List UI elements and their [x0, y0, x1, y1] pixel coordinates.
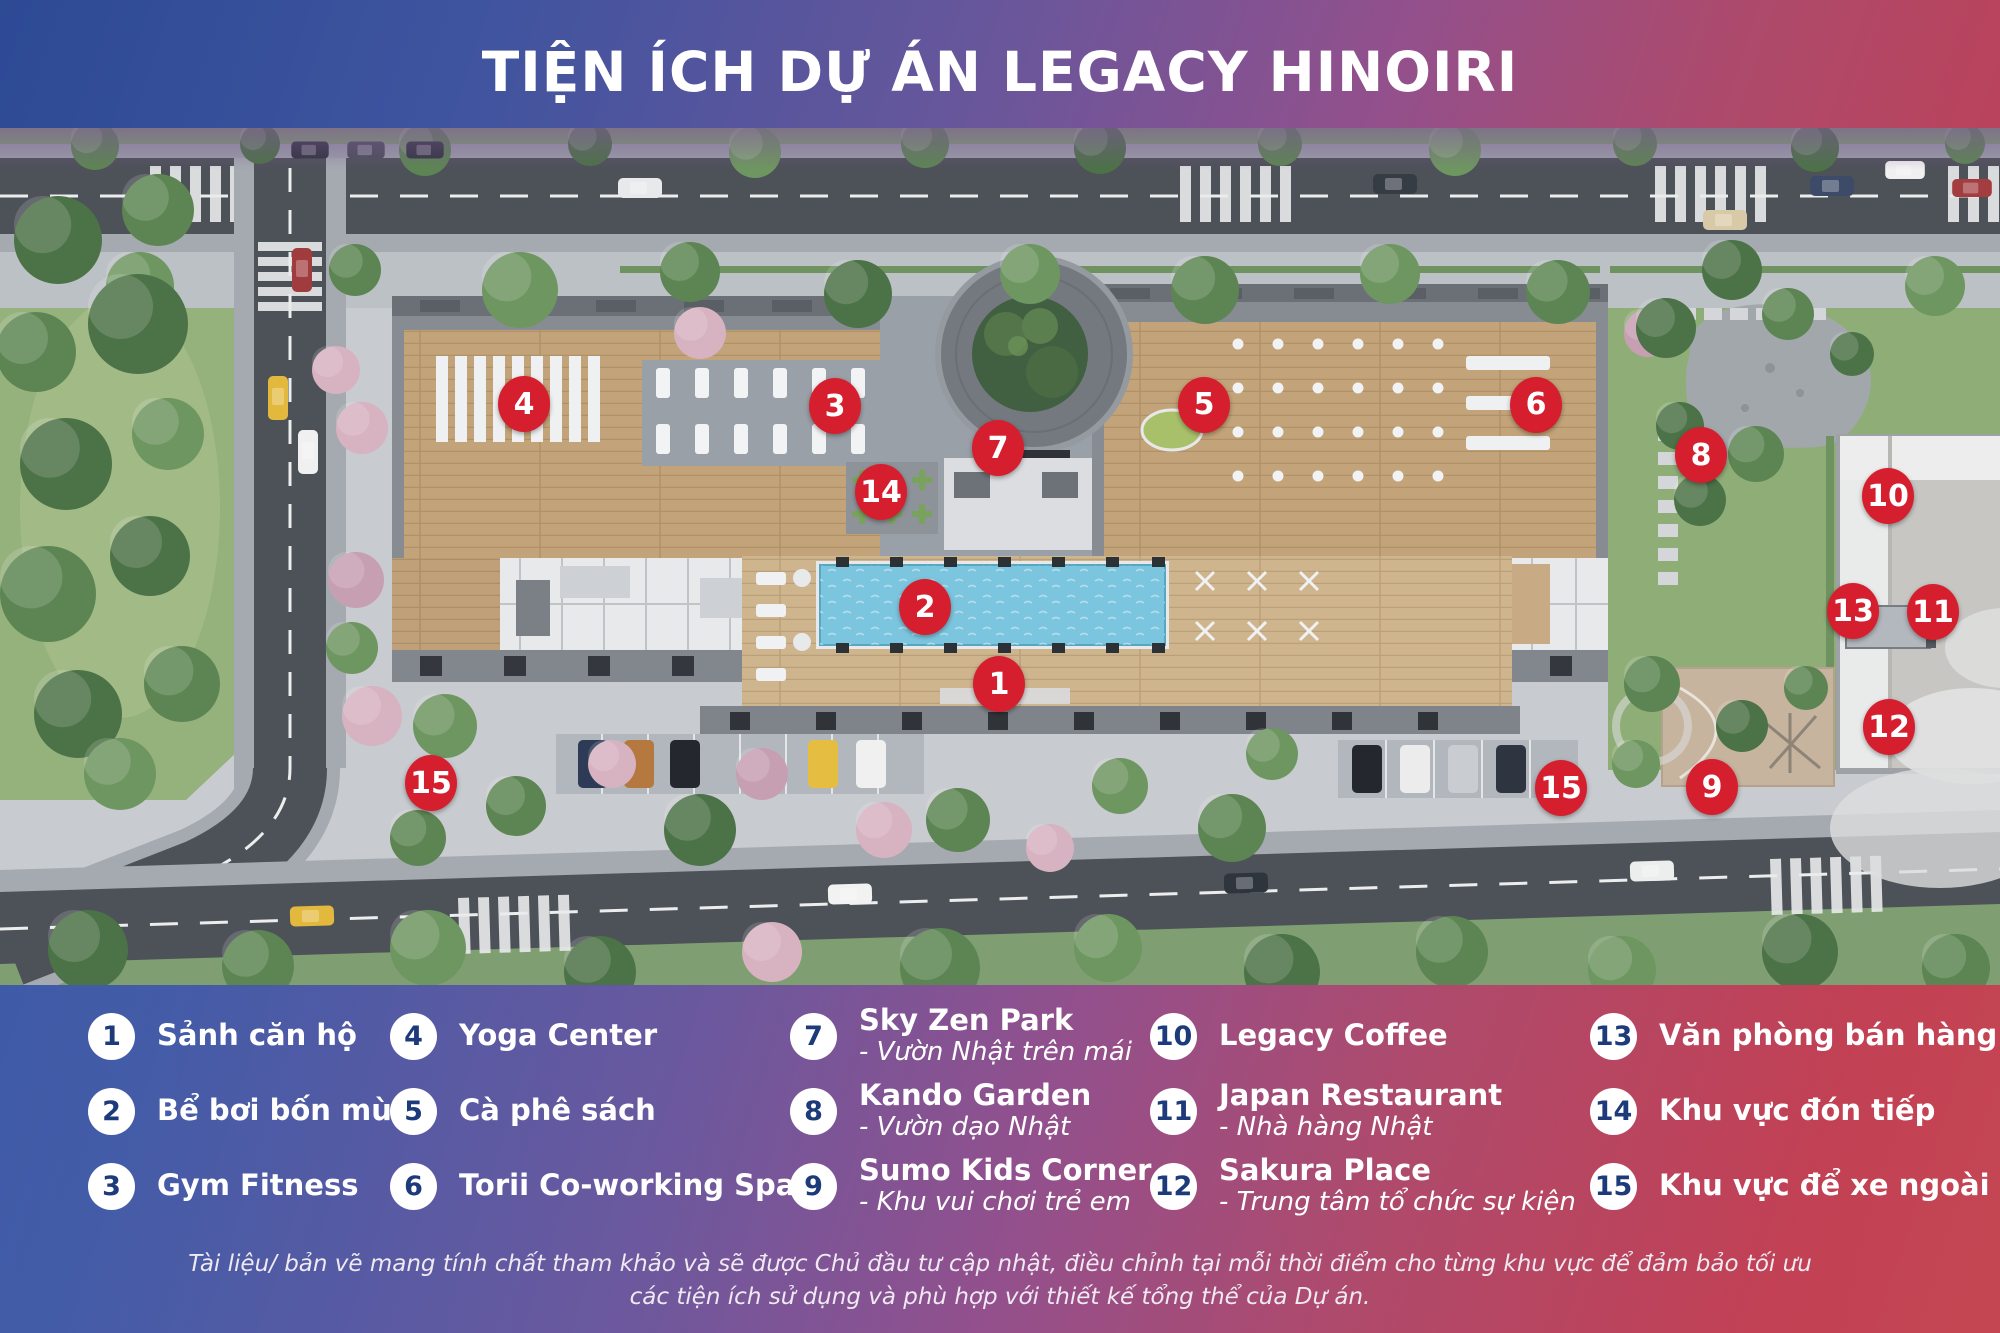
legend-item-4: 4Yoga Center	[390, 1008, 832, 1064]
legend-number-badge: 15	[1590, 1163, 1637, 1210]
map-marker-15: 15	[1535, 760, 1587, 816]
legend-number-badge: 6	[390, 1163, 437, 1210]
map-marker-14: 14	[855, 464, 907, 520]
legend-label: Torii Co-working Space	[459, 1169, 832, 1202]
legend-number-badge: 4	[390, 1013, 437, 1060]
map-marker-7: 7	[972, 420, 1024, 476]
legend-label: Sảnh căn hộ	[157, 1019, 357, 1052]
legend-sublabel: - Vườn dạo Nhật	[859, 1113, 1091, 1143]
legend-item-14: 14Khu vực đón tiếp	[1590, 1083, 2000, 1139]
legend-label: Sumo Kids Corner	[859, 1154, 1151, 1187]
legend-column-1: 1Sảnh căn hộ2Bể bơi bốn mùa3Gym Fitness	[88, 1008, 411, 1233]
site-plan-map: 12345678910111213141515	[0, 128, 2000, 985]
legend-item-13: 13Văn phòng bán hàng	[1590, 1008, 2000, 1064]
legend-text: Bể bơi bốn mùa	[157, 1094, 411, 1127]
legend-number-badge: 14	[1590, 1088, 1637, 1135]
legend-column-3: 7Sky Zen Park- Vườn Nhật trên mái8Kando …	[790, 1008, 1151, 1233]
map-marker-3: 3	[809, 378, 861, 434]
map-marker-2: 2	[899, 579, 951, 635]
legend-number-badge: 12	[1150, 1163, 1197, 1210]
legend-number-badge: 9	[790, 1163, 837, 1210]
legend-item-7: 7Sky Zen Park- Vườn Nhật trên mái	[790, 1008, 1151, 1064]
legend-text: Yoga Center	[459, 1019, 657, 1052]
legend-number-badge: 11	[1150, 1088, 1197, 1135]
legend-label: Sky Zen Park	[859, 1004, 1132, 1037]
legend-number-badge: 2	[88, 1088, 135, 1135]
legend-text: Sakura Place- Trung tâm tổ chức sự kiện	[1219, 1154, 1576, 1217]
amenities-poster: TIỆN ÍCH DỰ ÁN LEGACY HINOIRI	[0, 0, 2000, 1333]
legend-label: Yoga Center	[459, 1019, 657, 1052]
legend-sublabel: - Nhà hàng Nhật	[1219, 1113, 1502, 1143]
legend-item-6: 6Torii Co-working Space	[390, 1158, 832, 1214]
legend-text: Kando Garden- Vườn dạo Nhật	[859, 1079, 1091, 1142]
disclaimer-line-2: các tiện ích sử dụng và phù hợp với thiế…	[0, 1281, 2000, 1314]
legend-label: Legacy Coffee	[1219, 1019, 1448, 1052]
map-marker-13: 13	[1827, 583, 1879, 639]
legend-text: Sumo Kids Corner- Khu vui chơi trẻ em	[859, 1154, 1151, 1217]
legend-text: Sảnh căn hộ	[157, 1019, 357, 1052]
legend-label: Bể bơi bốn mùa	[157, 1094, 411, 1127]
legend-item-8: 8Kando Garden- Vườn dạo Nhật	[790, 1083, 1151, 1139]
legend-column-5: 13Văn phòng bán hàng14Khu vực đón tiếp15…	[1590, 1008, 2000, 1233]
map-marker-10: 10	[1862, 468, 1914, 524]
legend-item-11: 11Japan Restaurant- Nhà hàng Nhật	[1150, 1083, 1576, 1139]
legend-label: Văn phòng bán hàng	[1659, 1019, 1997, 1052]
legend-label: Khu vực để xe ngoài trời	[1659, 1169, 2000, 1202]
legend-text: Cà phê sách	[459, 1094, 656, 1127]
legend-label: Sakura Place	[1219, 1154, 1576, 1187]
disclaimer-text: Tài liệu/ bản vẽ mang tính chất tham khả…	[0, 1248, 2000, 1315]
legend-item-3: 3Gym Fitness	[88, 1158, 411, 1214]
legend-sublabel: - Vườn Nhật trên mái	[859, 1038, 1132, 1068]
disclaimer-line-1: Tài liệu/ bản vẽ mang tính chất tham khả…	[0, 1248, 2000, 1281]
legend-text: Japan Restaurant- Nhà hàng Nhật	[1219, 1079, 1502, 1142]
map-marker-12: 12	[1863, 699, 1915, 755]
legend-column-4: 10Legacy Coffee11Japan Restaurant- Nhà h…	[1150, 1008, 1576, 1233]
map-marker-4: 4	[498, 376, 550, 432]
map-marker-5: 5	[1178, 377, 1230, 433]
legend-column-2: 4Yoga Center5Cà phê sách6Torii Co-workin…	[390, 1008, 832, 1233]
map-marker-15: 15	[405, 755, 457, 811]
map-marker-9: 9	[1686, 759, 1738, 815]
amenities-legend: 1Sảnh căn hộ2Bể bơi bốn mùa3Gym Fitness4…	[0, 1008, 2000, 1243]
legend-sublabel: - Trung tâm tổ chức sự kiện	[1219, 1188, 1576, 1218]
legend-number-badge: 3	[88, 1163, 135, 1210]
legend-number-badge: 13	[1590, 1013, 1637, 1060]
legend-text: Khu vực để xe ngoài trời	[1659, 1169, 2000, 1202]
map-marker-6: 6	[1510, 377, 1562, 433]
map-marker-1: 1	[973, 656, 1025, 712]
legend-number-badge: 8	[790, 1088, 837, 1135]
legend-number-badge: 5	[390, 1088, 437, 1135]
legend-label: Japan Restaurant	[1219, 1079, 1502, 1112]
legend-sublabel: - Khu vui chơi trẻ em	[859, 1188, 1151, 1218]
legend-label: Cà phê sách	[459, 1094, 656, 1127]
legend-text: Văn phòng bán hàng	[1659, 1019, 1997, 1052]
legend-text: Legacy Coffee	[1219, 1019, 1448, 1052]
legend-item-5: 5Cà phê sách	[390, 1083, 832, 1139]
map-marker-8: 8	[1675, 427, 1727, 483]
legend-text: Sky Zen Park- Vườn Nhật trên mái	[859, 1004, 1132, 1067]
marker-layer: 12345678910111213141515	[0, 128, 2000, 985]
legend-label: Khu vực đón tiếp	[1659, 1094, 1935, 1127]
legend-text: Khu vực đón tiếp	[1659, 1094, 1935, 1127]
legend-number-badge: 1	[88, 1013, 135, 1060]
legend-item-1: 1Sảnh căn hộ	[88, 1008, 411, 1064]
legend-label: Gym Fitness	[157, 1169, 358, 1202]
page-title: TIỆN ÍCH DỰ ÁN LEGACY HINOIRI	[0, 40, 2000, 104]
legend-text: Torii Co-working Space	[459, 1169, 832, 1202]
legend-item-15: 15Khu vực để xe ngoài trời	[1590, 1158, 2000, 1214]
legend-text: Gym Fitness	[157, 1169, 358, 1202]
legend-item-9: 9Sumo Kids Corner- Khu vui chơi trẻ em	[790, 1158, 1151, 1214]
legend-number-badge: 7	[790, 1013, 837, 1060]
map-marker-11: 11	[1907, 584, 1959, 640]
legend-item-10: 10Legacy Coffee	[1150, 1008, 1576, 1064]
legend-item-12: 12Sakura Place- Trung tâm tổ chức sự kiệ…	[1150, 1158, 1576, 1214]
legend-item-2: 2Bể bơi bốn mùa	[88, 1083, 411, 1139]
legend-number-badge: 10	[1150, 1013, 1197, 1060]
legend-label: Kando Garden	[859, 1079, 1091, 1112]
